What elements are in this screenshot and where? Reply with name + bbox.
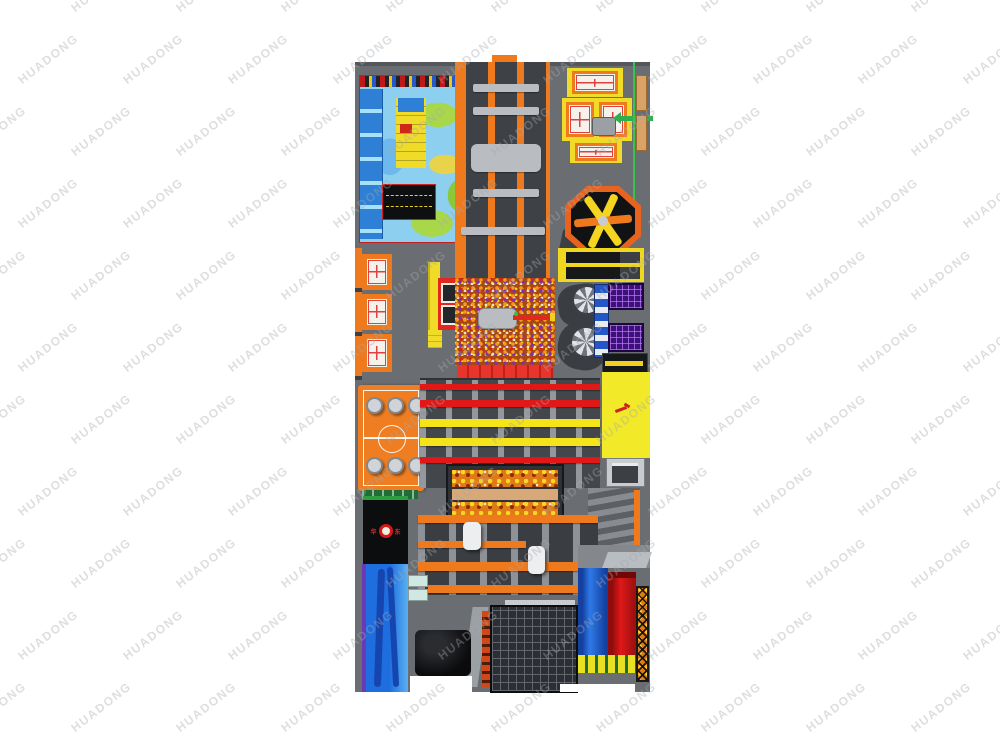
watermark-text: HUADONG bbox=[278, 679, 344, 735]
beam-yellow bbox=[420, 419, 600, 427]
watermark-text: HUADONG bbox=[15, 175, 81, 231]
watermark-text: HUADONG bbox=[960, 607, 1000, 663]
watermark-text: HUADONG bbox=[908, 679, 974, 735]
watermark-text: HUADONG bbox=[908, 391, 974, 447]
panel-cross bbox=[368, 260, 386, 284]
watermark-text: HUADONG bbox=[68, 679, 134, 735]
watermark-text: HUADONG bbox=[0, 247, 29, 303]
watermark-text: HUADONG bbox=[15, 607, 81, 663]
watermark-text: HUADONG bbox=[225, 463, 291, 519]
hoop-stand-steps bbox=[428, 330, 442, 348]
court-panel bbox=[566, 102, 594, 137]
teal-lockers bbox=[408, 575, 428, 601]
lane-pad bbox=[473, 107, 539, 115]
sign-green-top bbox=[363, 496, 408, 500]
sticky-wall-zone bbox=[558, 248, 644, 282]
sign-logo-row: 华 东 bbox=[363, 524, 408, 538]
watermark-text: HUADONG bbox=[698, 535, 764, 591]
watermark-text: HUADONG bbox=[645, 463, 711, 519]
slide-landing-yellow bbox=[578, 655, 636, 673]
sand-strip bbox=[452, 489, 558, 500]
vending-machine bbox=[612, 463, 638, 483]
watermark-text: HUADONG bbox=[120, 463, 186, 519]
watermark-text: HUADONG bbox=[855, 607, 921, 663]
stool bbox=[387, 457, 404, 474]
beam-red bbox=[420, 384, 600, 390]
watermark-text: HUADONG bbox=[698, 679, 764, 735]
watermark-text: HUADONG bbox=[803, 535, 869, 591]
climbing-wall-strip bbox=[636, 586, 649, 682]
airbag-black bbox=[415, 630, 471, 676]
battle-beam bbox=[513, 315, 553, 320]
beam-red bbox=[420, 457, 600, 463]
lane-pad bbox=[461, 227, 545, 235]
arrowhead bbox=[613, 112, 621, 124]
mini-trampoline-black bbox=[382, 184, 436, 220]
sign-right-char: 东 bbox=[395, 527, 401, 536]
sign-logo-circle bbox=[379, 524, 393, 538]
watermark-text: HUADONG bbox=[593, 0, 659, 15]
slide-lane-line bbox=[387, 567, 399, 687]
vending-machine-pad bbox=[606, 458, 645, 487]
watermark-text: HUADONG bbox=[173, 0, 239, 15]
stool bbox=[366, 457, 383, 474]
watermark-text: HUADONG bbox=[225, 175, 291, 231]
watermark-text: HUADONG bbox=[278, 247, 344, 303]
watermark-text: HUADONG bbox=[120, 31, 186, 87]
court-center-circle bbox=[378, 425, 406, 453]
dodgeball-court-top bbox=[567, 68, 623, 97]
court-cross-marking bbox=[576, 75, 614, 90]
watermark-text: HUADONG bbox=[120, 175, 186, 231]
watermark-text: HUADONG bbox=[803, 391, 869, 447]
stool-row bbox=[366, 397, 425, 414]
brand-sign: 华 东 bbox=[363, 500, 408, 566]
watermark-text: HUADONG bbox=[68, 103, 134, 159]
watermark-text: HUADONG bbox=[225, 607, 291, 663]
watermark-text: HUADONG bbox=[855, 463, 921, 519]
watermark-text: HUADONG bbox=[383, 0, 449, 15]
slide-blue-left bbox=[362, 564, 408, 692]
trampoline-park-plan: 华 东 bbox=[355, 62, 650, 692]
wall-edge-orange bbox=[355, 248, 362, 380]
watermark-text: HUADONG bbox=[225, 319, 291, 375]
locker-box bbox=[408, 589, 428, 601]
watermark-text: HUADONG bbox=[0, 103, 29, 159]
watermark-text: HUADONG bbox=[120, 319, 186, 375]
blue-play-panel-rack bbox=[360, 89, 383, 239]
watermark-text: HUADONG bbox=[645, 607, 711, 663]
beam-end-yellow bbox=[550, 313, 555, 321]
watermark-text: HUADONG bbox=[750, 31, 816, 87]
watermark-text: HUADONG bbox=[803, 247, 869, 303]
watermark-text: HUADONG bbox=[908, 247, 974, 303]
watermark-text: HUADONG bbox=[68, 247, 134, 303]
watermark-text: HUADONG bbox=[225, 31, 291, 87]
gray-mat bbox=[620, 267, 640, 279]
stool-row bbox=[366, 457, 425, 474]
sports-court-orange bbox=[358, 385, 424, 491]
step-track-blue-white bbox=[594, 284, 609, 358]
court-cross-marking bbox=[579, 147, 613, 157]
watermark-text: HUADONG bbox=[0, 535, 29, 591]
machine-stripe bbox=[605, 361, 643, 366]
watermark-text: HUADONG bbox=[68, 535, 134, 591]
beam-red bbox=[420, 400, 600, 407]
locker-box bbox=[408, 575, 428, 587]
pit-edge-red bbox=[457, 365, 554, 379]
watermark-text: HUADONG bbox=[0, 391, 29, 447]
grid-beam-orange bbox=[428, 585, 578, 593]
slide-red-cap bbox=[608, 572, 636, 578]
slide-blue-right bbox=[578, 568, 608, 668]
watermark-text: HUADONG bbox=[698, 0, 764, 15]
tramp-line bbox=[386, 195, 432, 196]
watermark-text: HUADONG bbox=[15, 31, 81, 87]
watermark-text: HUADONG bbox=[120, 607, 186, 663]
watermark-text: HUADONG bbox=[750, 463, 816, 519]
tramp-line bbox=[386, 206, 432, 207]
kids-playground-zone bbox=[360, 76, 460, 242]
watermark-text: HUADONG bbox=[173, 103, 239, 159]
watermark-text: HUADONG bbox=[278, 103, 344, 159]
watermark-text: HUADONG bbox=[15, 319, 81, 375]
court-cross-marking bbox=[570, 106, 590, 133]
ball-ornament-strip bbox=[360, 76, 460, 87]
slide-platform-wedge bbox=[602, 552, 652, 568]
watermark-text: HUADONG bbox=[960, 175, 1000, 231]
watermark-text: HUADONG bbox=[68, 391, 134, 447]
stool bbox=[387, 397, 404, 414]
watermark-text: HUADONG bbox=[68, 0, 134, 15]
watermark-text: HUADONG bbox=[278, 391, 344, 447]
gray-mat bbox=[620, 252, 640, 263]
stool bbox=[366, 397, 383, 414]
beam-yellow bbox=[420, 438, 600, 446]
running-lane-yellow bbox=[602, 372, 650, 458]
product-image: HUADONGHUADONGHUADONGHUADONGHUADONGHUADO… bbox=[0, 0, 1000, 748]
watermark-text: HUADONG bbox=[803, 0, 869, 15]
watermark-text: HUADONG bbox=[173, 247, 239, 303]
lane-pad-large bbox=[471, 144, 541, 172]
watermark-text: HUADONG bbox=[278, 535, 344, 591]
watermark-text: HUADONG bbox=[173, 679, 239, 735]
lava-strip bbox=[452, 470, 558, 487]
lava-pit-zone bbox=[446, 464, 564, 521]
wall-trampoline-panel bbox=[362, 334, 392, 372]
panel-cross bbox=[368, 340, 386, 366]
court-panel bbox=[575, 143, 617, 161]
watermark-text: HUADONG bbox=[173, 535, 239, 591]
main-trampoline-lanes bbox=[455, 62, 550, 280]
watermark-text: HUADONG bbox=[0, 0, 29, 15]
watermark-text: HUADONG bbox=[645, 319, 711, 375]
watermark-text: HUADONG bbox=[488, 0, 554, 15]
trampoline-grid-zone bbox=[418, 515, 598, 595]
watermark-text: HUADONG bbox=[15, 463, 81, 519]
watermark-text: HUADONG bbox=[698, 103, 764, 159]
lane-logo-mark bbox=[615, 406, 627, 413]
slide-lane-line bbox=[374, 569, 385, 687]
fort-blue-roof bbox=[398, 98, 424, 112]
dodgeball-court-bottom bbox=[570, 141, 622, 163]
foam-column bbox=[463, 522, 481, 550]
climbing-fort bbox=[396, 98, 426, 168]
wall-trampoline-panel bbox=[362, 294, 392, 330]
watermark-text: HUADONG bbox=[960, 31, 1000, 87]
watermark-text: HUADONG bbox=[960, 463, 1000, 519]
floor-cutout bbox=[410, 676, 472, 692]
ninja-zone bbox=[558, 282, 650, 375]
spider-tower-mesh bbox=[490, 605, 578, 693]
court-panel bbox=[572, 71, 618, 94]
ball-pit bbox=[455, 278, 555, 366]
watermark-text: HUADONG bbox=[645, 175, 711, 231]
watermark-text: HUADONG bbox=[908, 0, 974, 15]
floor-cutout bbox=[560, 684, 635, 692]
beam-flag-green bbox=[514, 312, 518, 316]
lava-strip bbox=[452, 502, 558, 516]
watermark-text: HUADONG bbox=[750, 319, 816, 375]
wall-trampoline-panel bbox=[362, 254, 392, 290]
sign-left-char: 华 bbox=[370, 527, 376, 536]
foam-column bbox=[528, 546, 545, 574]
battle-beam-pad bbox=[478, 308, 517, 329]
watermark-text: HUADONG bbox=[750, 607, 816, 663]
watermark-text: HUADONG bbox=[803, 679, 869, 735]
watermark-text: HUADONG bbox=[750, 175, 816, 231]
watermark-text: HUADONG bbox=[278, 0, 344, 15]
panel-cross bbox=[368, 300, 386, 324]
purple-trampoline bbox=[608, 283, 644, 310]
watermark-text: HUADONG bbox=[645, 31, 711, 87]
grid-beam-orange bbox=[418, 562, 598, 571]
watermark-text: HUADONG bbox=[0, 679, 29, 735]
lane-pad bbox=[473, 84, 539, 92]
watermark-text: HUADONG bbox=[698, 247, 764, 303]
watermark-text: HUADONG bbox=[960, 319, 1000, 375]
game-machine bbox=[602, 353, 648, 374]
bench bbox=[636, 75, 647, 111]
watermark-text: HUADONG bbox=[855, 319, 921, 375]
watermark-text: HUADONG bbox=[855, 175, 921, 231]
octagon-hub bbox=[598, 216, 608, 226]
watermark-text: HUADONG bbox=[698, 391, 764, 447]
watermark-text: HUADONG bbox=[803, 103, 869, 159]
fort-red-box bbox=[400, 124, 412, 133]
watermark-text: HUADONG bbox=[855, 31, 921, 87]
purple-trampoline bbox=[608, 323, 644, 352]
lane-pad bbox=[473, 189, 539, 197]
grid-beam-orange bbox=[418, 515, 598, 523]
watermark-text: HUADONG bbox=[908, 535, 974, 591]
watermark-text: HUADONG bbox=[173, 391, 239, 447]
watermark-text: HUADONG bbox=[908, 103, 974, 159]
bench bbox=[636, 115, 647, 151]
meltdown-octagon bbox=[565, 186, 641, 256]
